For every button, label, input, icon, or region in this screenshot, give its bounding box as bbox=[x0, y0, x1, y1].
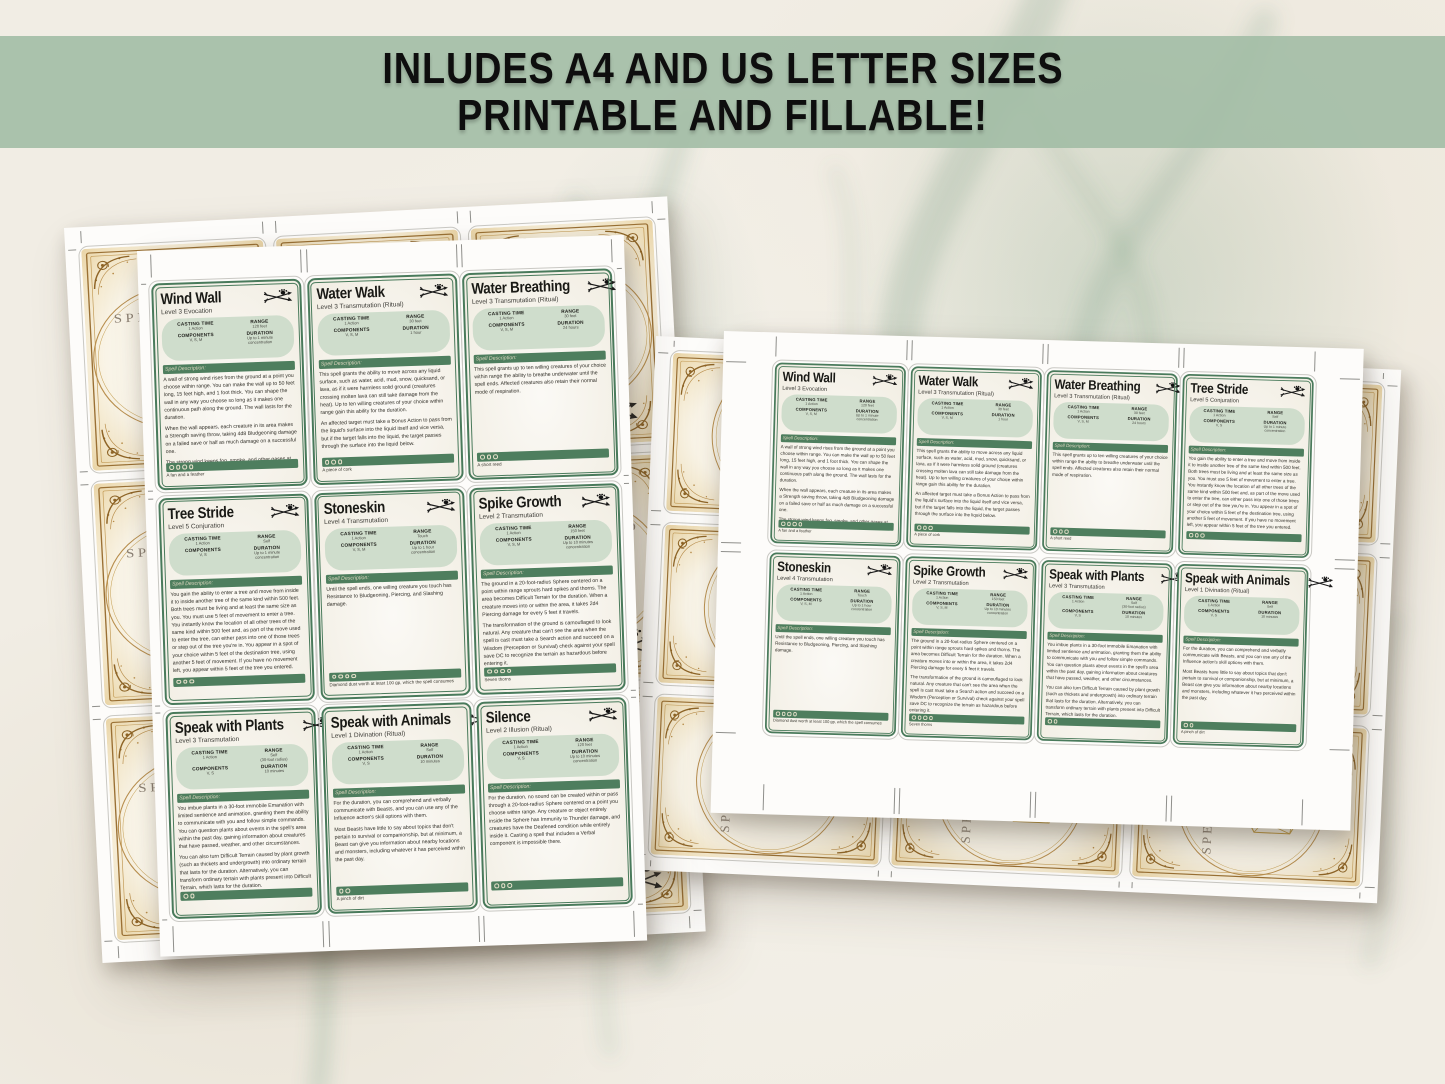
spell-stats: CASTING TIME1 Action RANGESelf (30-foot … bbox=[1048, 592, 1164, 632]
paw-and-crossed-arrows-icon bbox=[1154, 382, 1181, 395]
spell-description: You gain the ability to enter a tree and… bbox=[1186, 455, 1303, 534]
spell-stats: CASTING TIME1 Action RANGESelf COMPONENT… bbox=[1184, 595, 1300, 635]
spell-stats: CASTING TIME1 Action RANGE30 feet COMPON… bbox=[917, 398, 1033, 438]
spell-description: This spell grants the ability to move ac… bbox=[915, 448, 1032, 521]
duration-value: Up to 1 minute concentration bbox=[228, 335, 292, 346]
spell-description: For the duration, you can comprehend and… bbox=[1182, 645, 1299, 704]
spell-card-front: Spike Growth Level 2 Transmutation bbox=[901, 556, 1037, 740]
spell-card-front: Tree Stride Level 5 Conjuration bbox=[1178, 374, 1314, 558]
paw-and-crossed-arrows-icon bbox=[587, 707, 617, 722]
components-value: V, S, M bbox=[783, 412, 839, 417]
range-value: Self (30-foot radius) bbox=[1106, 601, 1162, 610]
spell-description: You gain the ability to enter a tree and… bbox=[170, 586, 305, 677]
spell-description: The ground in a 20-foot-radius Sphere ce… bbox=[481, 576, 616, 667]
description-header-label: Spell Description: bbox=[1183, 636, 1298, 647]
duration-value: Up to 10 minutes concentration bbox=[553, 753, 617, 764]
paw-and-crossed-arrows-icon bbox=[866, 564, 893, 577]
spell-stats: CASTING TIME1 Action RANGESelf COMPONENT… bbox=[1189, 405, 1305, 445]
paw-and-crossed-arrows-icon bbox=[269, 503, 299, 518]
spell-description: The ground in a 20-foot-radius Sphere ce… bbox=[909, 638, 1026, 717]
spell-description: For the duration, no sound can be create… bbox=[488, 790, 622, 848]
paw-and-crossed-arrows-icon bbox=[586, 278, 616, 293]
components-value: V, S bbox=[334, 761, 398, 768]
duration-value: 24 hours bbox=[1111, 421, 1167, 426]
duration-value: 1 hour bbox=[975, 417, 1031, 422]
casting-time-value: 1 Action bbox=[1050, 599, 1106, 604]
components-value: V, S bbox=[178, 770, 242, 777]
spell-description: This spell grants the ability to move ac… bbox=[319, 367, 454, 451]
spell-stats: CASTING TIME1 Action RANGE120 feet COMPO… bbox=[486, 733, 619, 779]
banner-title-line1: INLUDES A4 AND US LETTER SIZES bbox=[382, 45, 1063, 92]
spell-description: Until the spell ends, one willing creatu… bbox=[326, 581, 459, 608]
spell-stats: CASTING TIME1 Action RANGE30 feet COMPON… bbox=[317, 310, 450, 356]
components-value: V, S, M bbox=[164, 337, 228, 344]
spell-card-front: Spike Growth Level 2 Transmutation bbox=[469, 483, 626, 695]
paw-and-crossed-arrows-icon bbox=[1007, 378, 1034, 391]
spell-cards-sheet-a4: Wind Wall Level 3 Evocation bbox=[137, 235, 647, 957]
components-value: V, S, M bbox=[919, 415, 975, 420]
spell-stats: CASTING TIME1 Action RANGE120 feet COMPO… bbox=[781, 394, 897, 434]
spell-card-front: Stoneskin Level 4 Transmutation bbox=[314, 488, 471, 700]
spell-stats: CASTING TIME1 Action RANGESelf COMPONENT… bbox=[168, 529, 301, 575]
paw-and-crossed-arrows-icon bbox=[580, 493, 610, 508]
paw-and-crossed-arrows-icon bbox=[1279, 385, 1306, 398]
spell-stats: CASTING TIME1 Action RANGESelf COMPONENT… bbox=[331, 738, 464, 784]
spell-stats: CASTING TIME1 Action RANGE30 feet COMPON… bbox=[472, 305, 605, 351]
duration-value: Up to 1 minute concentration bbox=[1247, 425, 1303, 434]
components-value: V, S, M bbox=[319, 332, 383, 339]
spell-stats: CASTING TIME1 Action RANGE150 feet COMPO… bbox=[479, 519, 612, 565]
product-mockup-image: INLUDES A4 AND US LETTER SIZES PRINTABLE… bbox=[0, 0, 1445, 1084]
banner: INLUDES A4 AND US LETTER SIZES PRINTABLE… bbox=[0, 36, 1445, 148]
paw-and-crossed-arrows-icon bbox=[262, 289, 292, 304]
spell-card-front: Water Breathing Level 3 Transmutation (R… bbox=[462, 268, 619, 480]
banner-title-line2: PRINTABLE AND FILLABLE! bbox=[457, 92, 988, 139]
spell-card-front: Wind Wall Level 3 Evocation bbox=[770, 362, 906, 546]
paw-and-crossed-arrows-icon bbox=[871, 374, 898, 387]
spell-description: Until the spell ends, one willing creatu… bbox=[775, 634, 891, 657]
description-header-label: Spell Description: bbox=[1053, 442, 1168, 453]
range-value: Self (30-foot radius) bbox=[242, 752, 306, 763]
description-header-label: Spell Description: bbox=[1047, 632, 1162, 643]
spell-card-front: Water Breathing Level 3 Transmutation (R… bbox=[1042, 370, 1178, 554]
spell-description: A wall of strong wind rises from the gro… bbox=[779, 444, 896, 523]
spell-card-front: Water Walk Level 3 Transmutation (Ritual… bbox=[307, 273, 464, 485]
paw-and-crossed-arrows-icon bbox=[425, 498, 455, 513]
duration-value: 10 minutes bbox=[398, 758, 462, 765]
duration-value: 1 hour bbox=[383, 330, 447, 337]
duration-value: Up to 10 minutes concentration bbox=[546, 539, 610, 550]
spell-stats: CASTING TIME1 Action RANGETouch COMPONEN… bbox=[324, 524, 457, 570]
spell-card-front: Wind Wall Level 3 Evocation bbox=[151, 279, 308, 491]
description-header-label: Spell Description: bbox=[911, 628, 1026, 639]
spell-stats: CASTING TIME1 Action RANGE120 feet COMPO… bbox=[161, 315, 294, 361]
description-header-label: Spell Description: bbox=[781, 434, 896, 445]
duration-value: Up to 1 hour concentration bbox=[834, 603, 890, 612]
paw-and-crossed-arrows-icon bbox=[1002, 568, 1029, 581]
spell-card-front: Speak with Plants Level 3 Transmutation bbox=[165, 707, 322, 919]
casting-time-value: 1 Action bbox=[178, 754, 242, 761]
components-value: V, S bbox=[489, 755, 553, 762]
spell-description: You imbue plants in a 30-foot immobile E… bbox=[1045, 641, 1162, 720]
spell-card-front: Speak with Animals Level 1 Divination (R… bbox=[321, 702, 478, 914]
duration-value: 10 minutes bbox=[1106, 615, 1162, 620]
duration-value: 24 hours bbox=[539, 325, 603, 332]
spell-description: This spell grants up to ten willing crea… bbox=[1052, 451, 1168, 481]
description-header-label: Spell Description: bbox=[1189, 446, 1304, 457]
spell-stats: CASTING TIME1 Action RANGE150 feet COMPO… bbox=[912, 588, 1028, 628]
components-value: V, S, M bbox=[778, 601, 834, 606]
spell-description: This spell grants up to ten willing crea… bbox=[474, 362, 607, 397]
duration-value: Up to 10 minutes concentration bbox=[970, 607, 1026, 616]
spell-card-front: Water Walk Level 3 Transmutation (Ritual… bbox=[906, 366, 1042, 550]
components-value: V, S bbox=[1191, 423, 1247, 428]
duration-value: 10 minutes bbox=[1242, 614, 1298, 619]
spell-card-front: Tree Stride Level 5 Conjuration bbox=[158, 493, 315, 705]
spell-description: For the duration, you can comprehend and… bbox=[333, 795, 467, 864]
description-header-label: Spell Description: bbox=[917, 438, 1032, 449]
paw-and-crossed-arrows-icon bbox=[1307, 576, 1334, 589]
spell-card-front: Speak with Plants Level 3 Transmutation bbox=[1037, 560, 1173, 744]
spell-stats: CASTING TIME1 Action RANGE30 feet COMPON… bbox=[1053, 402, 1169, 442]
duration-value: Up to 1 hour concentration bbox=[390, 544, 454, 555]
description-header-label: Spell Description: bbox=[775, 624, 890, 635]
spell-card-front: Stoneskin Level 4 Transmutation bbox=[765, 552, 901, 736]
components-value: V, S, M bbox=[475, 327, 539, 334]
components-value: V, S bbox=[1050, 613, 1106, 618]
components-value: V, S, M bbox=[914, 605, 970, 610]
spell-stats: CASTING TIME1 Action RANGESelf (30-foot … bbox=[175, 744, 308, 790]
spell-description: A wall of strong wind rises from the gro… bbox=[163, 372, 298, 463]
components-value: V, S, M bbox=[1055, 419, 1111, 424]
spell-stats: CASTING TIME1 Action RANGETouch COMPONEN… bbox=[776, 584, 892, 624]
duration-value: Up to 1 minute concentration bbox=[839, 413, 895, 422]
duration-value: 10 minutes bbox=[242, 768, 306, 775]
components-value: V, S bbox=[1186, 613, 1242, 618]
paw-and-crossed-arrows-icon bbox=[418, 284, 448, 299]
spell-cards-sheet-us-letter: Wind Wall Level 3 Evocation bbox=[711, 331, 1364, 831]
spell-card-front: Speak with Animals Level 1 Divination (R… bbox=[1173, 564, 1309, 748]
duration-value: Up to 1 minute concentration bbox=[235, 549, 299, 560]
spell-description: You imbue plants in a 30-foot immobile E… bbox=[177, 801, 312, 892]
spell-card-front: Silence Level 2 Illusion (Ritual) bbox=[476, 697, 633, 909]
